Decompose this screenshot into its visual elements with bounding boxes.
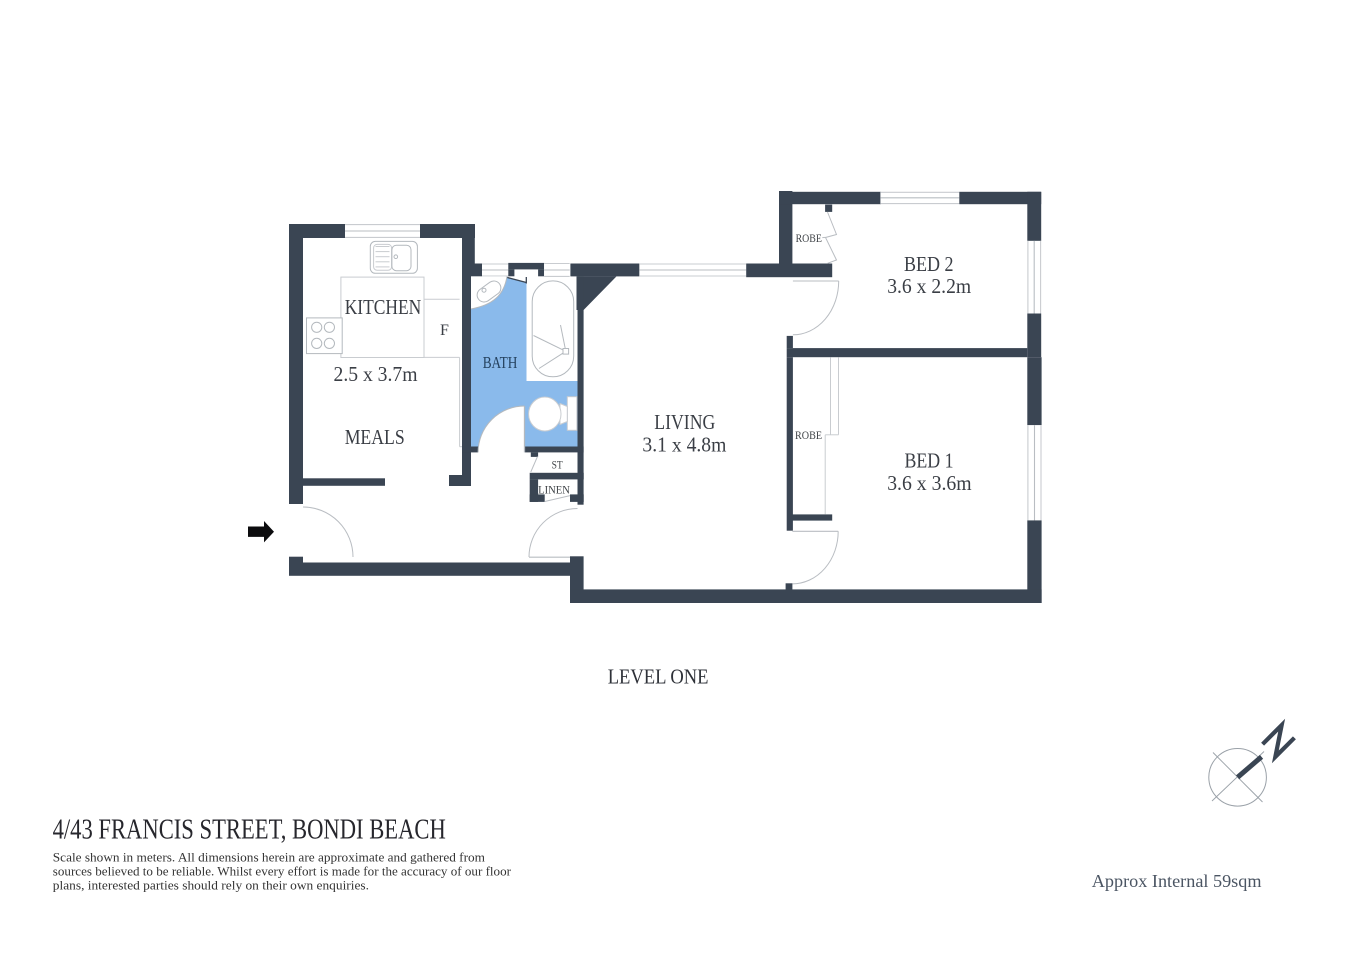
svg-text:MEALS: MEALS	[345, 425, 405, 449]
svg-text:Scale shown in meters. All dim: Scale shown in meters. All dimensions he…	[53, 851, 485, 865]
svg-text:3.1 x 4.8m: 3.1 x 4.8m	[642, 433, 726, 457]
svg-text:KITCHEN: KITCHEN	[345, 295, 422, 319]
svg-text:4/43 FRANCIS STREET, BONDI BEA: 4/43 FRANCIS STREET, BONDI BEACH	[53, 814, 446, 846]
svg-text:LEVEL ONE: LEVEL ONE	[608, 664, 709, 688]
svg-text:F: F	[440, 322, 449, 339]
svg-text:sources believed to be reliab: sources believed to be reliable. Whilst …	[53, 865, 512, 879]
svg-text:LIVING: LIVING	[654, 410, 715, 434]
svg-text:plans, interested parties shou: plans, interested parties should rely on…	[53, 879, 369, 893]
svg-text:ROBE: ROBE	[795, 430, 822, 442]
svg-text:Approx Internal 59sqm: Approx Internal 59sqm	[1092, 871, 1262, 891]
svg-text:3.6 x 2.2m: 3.6 x 2.2m	[887, 274, 971, 298]
svg-text:BED 1: BED 1	[905, 449, 954, 473]
svg-text:BED 2: BED 2	[904, 252, 954, 276]
svg-text:ST: ST	[552, 459, 563, 471]
svg-text:LINEN: LINEN	[538, 485, 571, 497]
svg-text:BATH: BATH	[483, 353, 518, 372]
svg-text:3.6 x 3.6m: 3.6 x 3.6m	[887, 471, 972, 495]
svg-text:2.5 x 3.7m: 2.5 x 3.7m	[334, 362, 418, 386]
svg-text:ROBE: ROBE	[796, 233, 822, 245]
